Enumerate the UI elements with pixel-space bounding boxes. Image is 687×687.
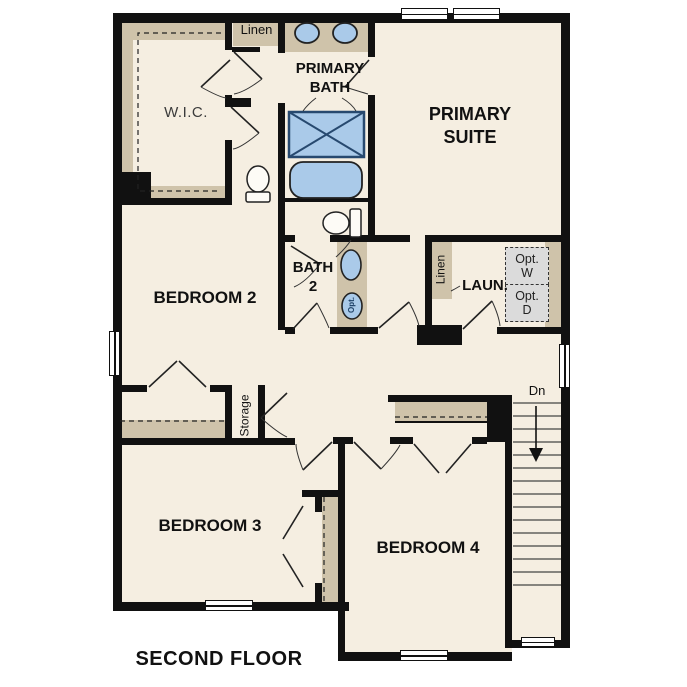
room-label-wic: W.I.C. <box>146 104 226 123</box>
stair-treads <box>513 403 561 585</box>
closet-label-storage: Storage <box>238 376 253 456</box>
room-label-bedroom3: BEDROOM 3 <box>130 515 290 536</box>
room-label-bedroom4: BEDROOM 4 <box>348 537 508 558</box>
plan-title: SECOND FLOOR <box>109 647 329 672</box>
toilet-icon <box>246 166 270 202</box>
floor-plan: Opt. W Opt. D <box>0 0 687 687</box>
room-label-primary-bath: PRIMARY BATH <box>270 60 390 98</box>
room-label-primary-suite: PRIMARY SUITE <box>400 103 540 148</box>
room-label-bedroom2: BEDROOM 2 <box>125 287 285 308</box>
stairs-down-arrow-icon <box>529 406 543 462</box>
closet-label-linen-top: Linen <box>233 22 280 38</box>
stairs-down-label: Dn <box>522 383 552 399</box>
shower-icon <box>289 112 364 157</box>
vanity-sinks-icon <box>295 23 357 43</box>
room-label-laundry: LAUN. <box>455 277 515 296</box>
optional-sink-label: Opt. <box>347 290 357 320</box>
room-label-bath2: BATH 2 <box>283 259 343 297</box>
bathtub-icon <box>290 162 362 198</box>
plan-linework <box>0 0 687 687</box>
closet-label-linen-laundry: Linen <box>434 235 449 305</box>
toilet2-icon <box>323 209 361 237</box>
